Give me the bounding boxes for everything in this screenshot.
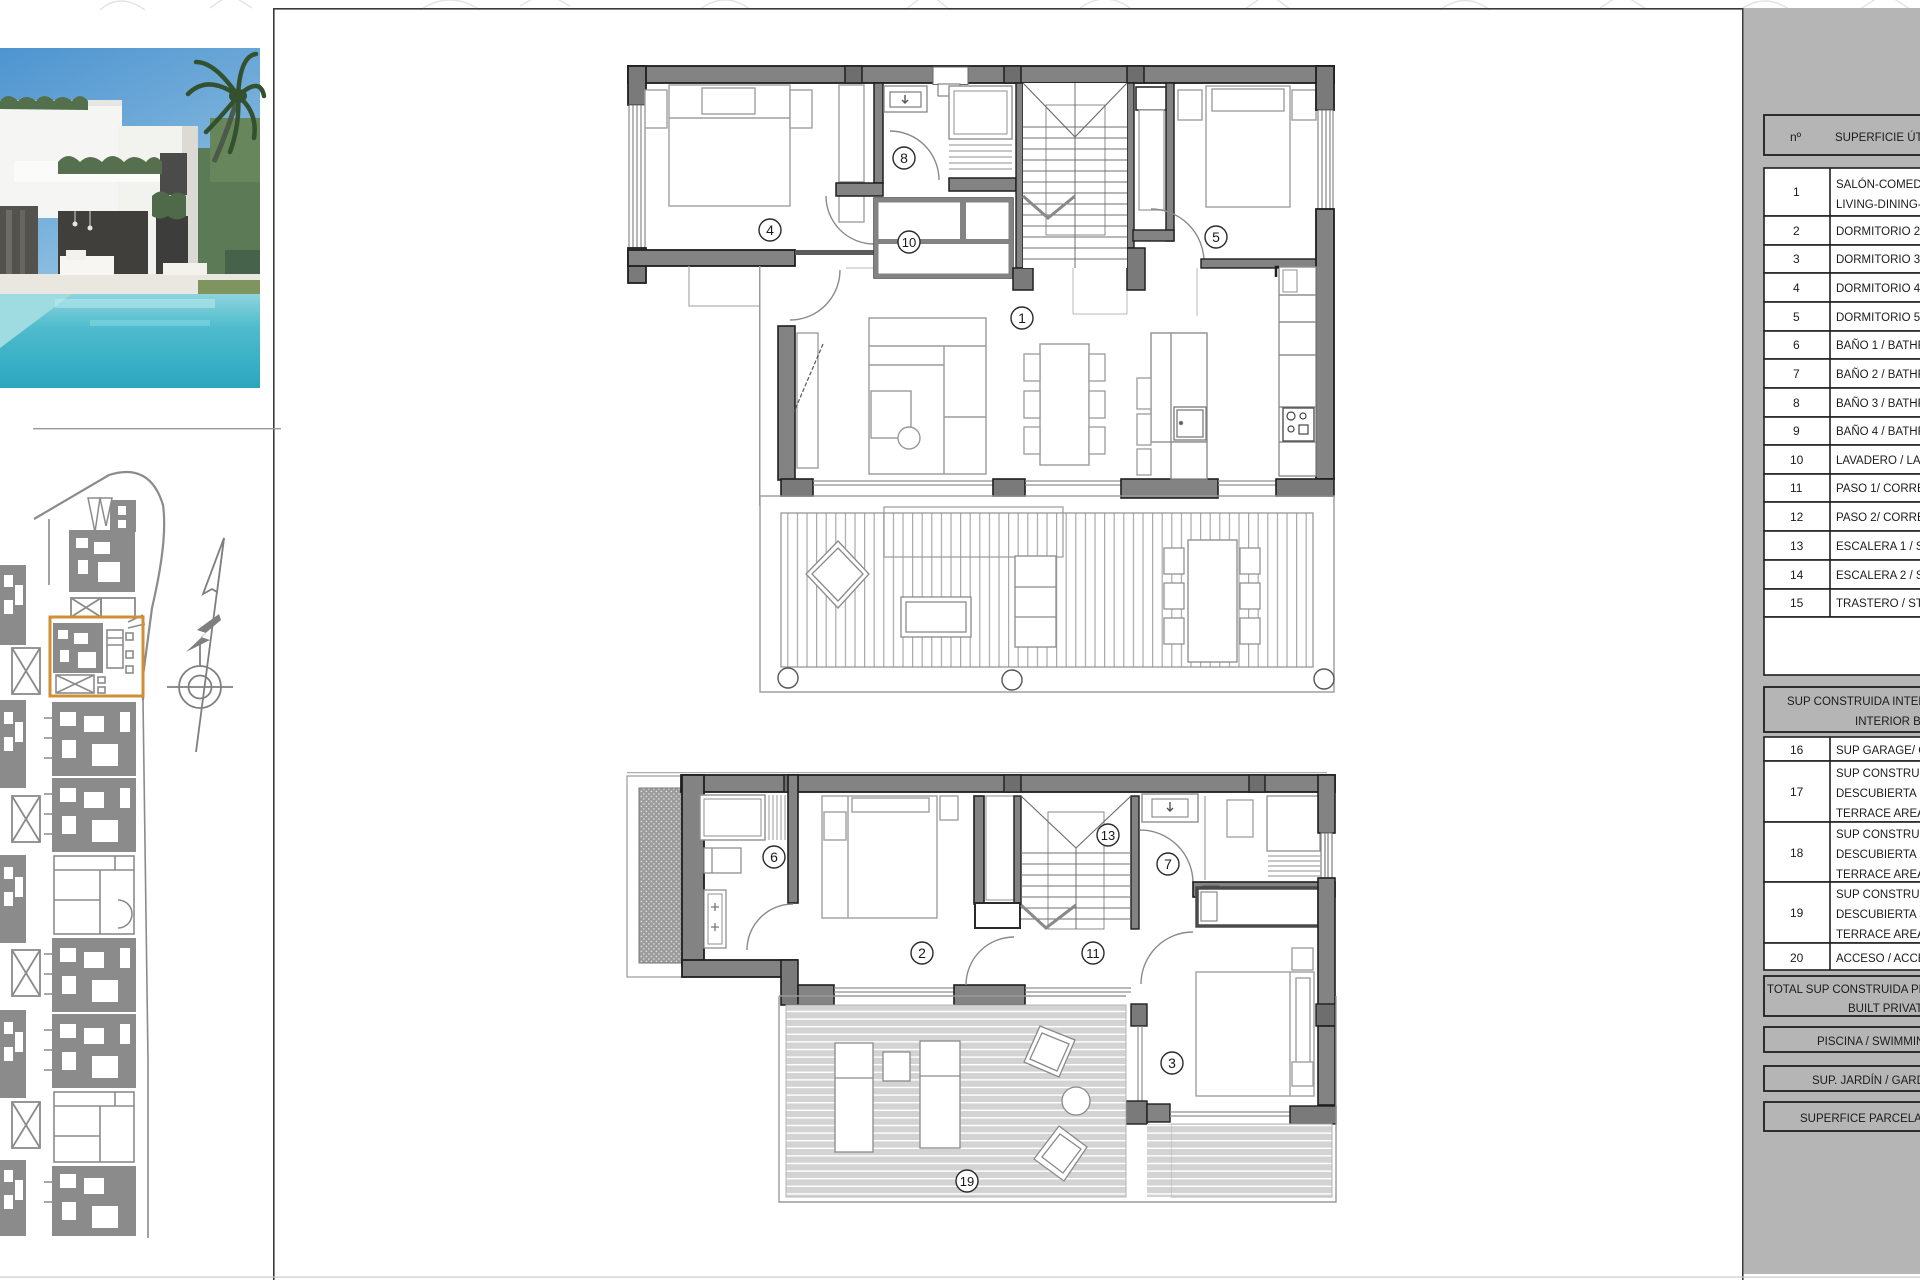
svg-text:PASO 1/ CORREDOR 1: PASO 1/ CORREDOR 1 — [1836, 483, 1920, 495]
svg-text:LAVADERO / LAUNDRY: LAVADERO / LAUNDRY — [1836, 455, 1920, 467]
svg-text:13: 13 — [1101, 828, 1115, 843]
svg-text:BAÑO 1 / BATHROOM 1: BAÑO 1 / BATHROOM 1 — [1836, 339, 1920, 352]
svg-text:13: 13 — [1790, 539, 1804, 553]
svg-text:DESCUBIERTA 1/ UNCOVERED: DESCUBIERTA 1/ UNCOVERED — [1836, 788, 1920, 800]
svg-text:SUP CONSTRUIDA TERRAZA: SUP CONSTRUIDA TERRAZA — [1836, 829, 1920, 841]
svg-text:SUP. JARDÍN / GARDEN AREA: SUP. JARDÍN / GARDEN AREA — [1812, 1074, 1920, 1087]
svg-text:8: 8 — [1793, 396, 1800, 410]
svg-text:2: 2 — [1793, 224, 1800, 238]
svg-text:LIVING-DINING-KITCHEN: LIVING-DINING-KITCHEN — [1836, 199, 1920, 211]
svg-text:BAÑO 2 / BATHROOM 2: BAÑO 2 / BATHROOM 2 — [1836, 368, 1920, 381]
svg-text:4: 4 — [1793, 281, 1800, 295]
svg-text:3: 3 — [1793, 252, 1800, 266]
svg-text:9: 9 — [1793, 424, 1800, 438]
svg-text:ESCALERA 1 / STAIRS 1: ESCALERA 1 / STAIRS 1 — [1836, 541, 1920, 553]
svg-text:10: 10 — [1790, 453, 1804, 467]
svg-text:19: 19 — [960, 1174, 974, 1189]
svg-text:DORMITORIO 4 / BEDROOM 4: DORMITORIO 4 / BEDROOM 4 — [1836, 283, 1920, 295]
svg-text:7: 7 — [1164, 856, 1172, 872]
svg-text:PISCINA / SWIMMING POOL: PISCINA / SWIMMING POOL — [1817, 1036, 1920, 1048]
svg-text:nº: nº — [1790, 130, 1802, 144]
svg-text:TOTAL SUP CONSTRUIDA PRIVADA: TOTAL SUP CONSTRUIDA PRIVADA — [1767, 984, 1920, 996]
svg-text:6: 6 — [1793, 338, 1800, 352]
svg-text:18: 18 — [1790, 846, 1804, 860]
svg-text:2: 2 — [918, 945, 926, 961]
svg-text:SUPERFICE PARCELA / PLOT: SUPERFICE PARCELA / PLOT — [1800, 1113, 1920, 1125]
svg-text:TERRACE AREA 2: TERRACE AREA 2 — [1836, 869, 1920, 881]
svg-text:BAÑO 3 / BATHROOM 3: BAÑO 3 / BATHROOM 3 — [1836, 397, 1920, 410]
svg-text:5: 5 — [1212, 229, 1220, 245]
svg-text:SUP CONSTRUIDA TERRAZA: SUP CONSTRUIDA TERRAZA — [1836, 768, 1920, 780]
svg-text:BAÑO 4 / BATHROOM 4: BAÑO 4 / BATHROOM 4 — [1836, 425, 1920, 438]
svg-text:BUILT PRIVATE AREA: BUILT PRIVATE AREA — [1848, 1003, 1920, 1015]
svg-text:DORMITORIO 2 / BEDROOM 2: DORMITORIO 2 / BEDROOM 2 — [1836, 226, 1920, 238]
svg-text:SUPERFICIE ÚTIL / USEFUL AREA: SUPERFICIE ÚTIL / USEFUL AREA — [1835, 131, 1920, 144]
svg-text:6: 6 — [770, 849, 778, 865]
svg-text:TRASTERO / STORAGE: TRASTERO / STORAGE — [1836, 598, 1920, 610]
svg-text:14: 14 — [1790, 568, 1804, 582]
svg-text:10: 10 — [902, 235, 916, 250]
svg-text:SUP CONSTRUIDA TERRAZA: SUP CONSTRUIDA TERRAZA — [1836, 889, 1920, 901]
svg-text:15: 15 — [1790, 596, 1804, 610]
svg-text:SUP CONSTRUIDA INTERIOR /: SUP CONSTRUIDA INTERIOR / — [1787, 696, 1920, 708]
svg-text:DORMITORIO 3 / BEDROOM 3: DORMITORIO 3 / BEDROOM 3 — [1836, 254, 1920, 266]
svg-text:TERRACE AREA 3: TERRACE AREA 3 — [1836, 929, 1920, 941]
svg-text:ACCESO / ACCESS: ACCESO / ACCESS — [1836, 953, 1920, 965]
svg-text:DESCUBIERTA 2/ UNCOVERED: DESCUBIERTA 2/ UNCOVERED — [1836, 849, 1920, 861]
svg-text:20: 20 — [1790, 951, 1804, 965]
svg-text:11: 11 — [1790, 481, 1803, 495]
svg-text:4: 4 — [766, 222, 774, 238]
svg-text:11: 11 — [1086, 946, 1100, 961]
svg-text:5: 5 — [1793, 310, 1800, 324]
svg-text:PASO 2/ CORREDOR 2: PASO 2/ CORREDOR 2 — [1836, 512, 1920, 524]
svg-text:3: 3 — [1168, 1055, 1176, 1071]
svg-text:8: 8 — [900, 150, 908, 166]
svg-text:ESCALERA 2 / STAIRS 2: ESCALERA 2 / STAIRS 2 — [1836, 570, 1920, 582]
svg-text:1: 1 — [1793, 185, 1800, 199]
svg-text:SALÓN-COMEDOR-COCINA /: SALÓN-COMEDOR-COCINA / — [1836, 178, 1920, 191]
svg-text:12: 12 — [1790, 510, 1804, 524]
svg-text:SUP GARAGE/ GARAGE AREA: SUP GARAGE/ GARAGE AREA — [1836, 745, 1920, 757]
svg-text:16: 16 — [1790, 743, 1804, 757]
svg-text:17: 17 — [1790, 785, 1804, 799]
svg-text:DORMITORIO 5 / BEDROOM 5: DORMITORIO 5 / BEDROOM 5 — [1836, 312, 1920, 324]
svg-text:TERRACE AREA 1: TERRACE AREA 1 — [1836, 808, 1920, 820]
svg-text:7: 7 — [1793, 367, 1800, 381]
svg-text:1: 1 — [1018, 310, 1026, 326]
svg-text:DESCUBIERTA 3/ UNCOVERED: DESCUBIERTA 3/ UNCOVERED — [1836, 909, 1920, 921]
svg-text:INTERIOR BUILT AREA: INTERIOR BUILT AREA — [1855, 716, 1920, 728]
svg-text:19: 19 — [1790, 906, 1804, 920]
